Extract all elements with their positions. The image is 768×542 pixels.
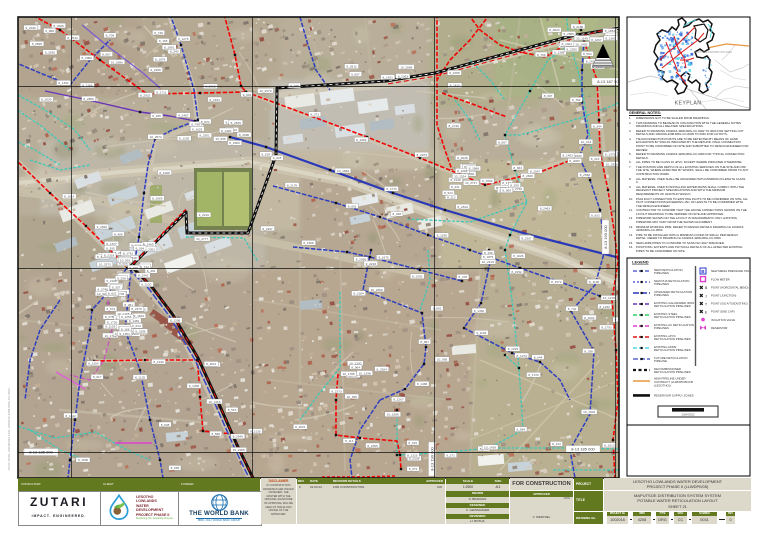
svg-text:8_441: 8_441 bbox=[451, 185, 460, 189]
svg-text:PIPELINES: PIPELINES bbox=[654, 326, 669, 330]
svg-text:RESERVOIR SUPPLY ZONES: RESERVOIR SUPPLY ZONES bbox=[654, 393, 694, 397]
svg-text:10_1145: 10_1145 bbox=[576, 36, 588, 40]
svg-text:8_1952: 8_1952 bbox=[511, 270, 522, 274]
svg-text:8_540: 8_540 bbox=[170, 50, 179, 54]
svg-text:✖: ✖ bbox=[699, 294, 704, 300]
svg-text:8_2626: 8_2626 bbox=[523, 174, 534, 178]
svg-text:8_1593: 8_1593 bbox=[412, 275, 423, 279]
svg-text:8_2396: 8_2396 bbox=[135, 330, 146, 334]
svg-text:(LESOTHO)): (LESOTHO)) bbox=[654, 383, 671, 387]
svg-text:8_948: 8_948 bbox=[392, 212, 401, 216]
svg-text:8_796: 8_796 bbox=[191, 122, 200, 126]
svg-text:8_1572: 8_1572 bbox=[551, 280, 562, 284]
svg-text:10_395: 10_395 bbox=[347, 395, 358, 399]
svg-text:8_2363: 8_2363 bbox=[398, 74, 409, 78]
svg-text:8_298: 8_298 bbox=[584, 349, 593, 353]
svg-text:8_1375: 8_1375 bbox=[605, 153, 616, 157]
svg-text:9_1410: 9_1410 bbox=[450, 84, 461, 88]
svg-text:8_1630: 8_1630 bbox=[78, 458, 89, 462]
svg-text:10_656: 10_656 bbox=[215, 137, 226, 141]
svg-text:8_2739: 8_2739 bbox=[449, 124, 460, 128]
svg-text:ISOLATION VALVE: ISOLATION VALVE bbox=[711, 318, 735, 322]
svg-text:10_2419: 10_2419 bbox=[482, 260, 494, 264]
svg-text:8_1290: 8_1290 bbox=[437, 234, 448, 238]
svg-text:LEGEND: LEGEND bbox=[632, 260, 649, 265]
svg-text:9_2812: 9_2812 bbox=[346, 65, 357, 69]
svg-text:8_2568: 8_2568 bbox=[580, 173, 591, 177]
svg-text:8_702: 8_702 bbox=[568, 307, 577, 311]
svg-text:8_2202: 8_2202 bbox=[584, 316, 595, 320]
svg-text:8_1891: 8_1891 bbox=[164, 46, 175, 50]
svg-text:8_1106: 8_1106 bbox=[589, 280, 599, 284]
svg-text:8_1240: 8_1240 bbox=[153, 360, 164, 364]
svg-text:9_1829: 9_1829 bbox=[97, 225, 108, 229]
svg-text:8_2611: 8_2611 bbox=[206, 362, 216, 366]
svg-text:8_1726: 8_1726 bbox=[107, 321, 118, 325]
svg-text:8_1338: 8_1338 bbox=[170, 319, 181, 323]
svg-text:8_1325: 8_1325 bbox=[407, 454, 418, 458]
svg-text:10_2924: 10_2924 bbox=[454, 175, 466, 179]
svg-text:✖: ✖ bbox=[699, 302, 704, 308]
svg-text:8_1452: 8_1452 bbox=[474, 309, 485, 313]
svg-text:8_1276: 8_1276 bbox=[178, 37, 189, 41]
svg-text:8_2619: 8_2619 bbox=[458, 205, 469, 209]
svg-text:8_1265: 8_1265 bbox=[121, 315, 132, 319]
svg-text:10_2717: 10_2717 bbox=[465, 181, 477, 185]
svg-text:10_2573: 10_2573 bbox=[99, 263, 111, 267]
svg-text:9_2208: 9_2208 bbox=[150, 68, 161, 72]
svg-text:8_1120: 8_1120 bbox=[141, 283, 151, 287]
svg-text:POINT (HORIZONTAL BEND): POINT (HORIZONTAL BEND) bbox=[711, 285, 748, 289]
svg-text:8_567: 8_567 bbox=[498, 141, 507, 145]
svg-text:9_1625: 9_1625 bbox=[192, 127, 203, 131]
svg-text:J: J bbox=[705, 294, 707, 298]
svg-text:RETICULATION PIPELINES: RETICULATION PIPELINES bbox=[654, 337, 691, 341]
svg-text:8_892: 8_892 bbox=[433, 307, 442, 311]
svg-text:8_2823: 8_2823 bbox=[549, 28, 560, 32]
svg-text:8_1711: 8_1711 bbox=[156, 90, 166, 94]
svg-text:8_156: 8_156 bbox=[159, 39, 168, 43]
svg-text:8-13 190 000: 8-13 190 000 bbox=[603, 224, 608, 248]
svg-text:8_672: 8_672 bbox=[409, 467, 418, 471]
svg-text:POINT (ISO A/TS/EXISTING): POINT (ISO A/TS/EXISTING) bbox=[711, 302, 748, 306]
svg-text:9_2216: 9_2216 bbox=[199, 213, 210, 217]
svg-text:8_631: 8_631 bbox=[108, 292, 117, 296]
svg-text:8_2501: 8_2501 bbox=[199, 134, 210, 138]
svg-text:8_915: 8_915 bbox=[408, 441, 417, 445]
svg-text:8_833: 8_833 bbox=[513, 166, 522, 170]
svg-text:9_1829: 9_1829 bbox=[134, 314, 145, 318]
svg-text:8_2463: 8_2463 bbox=[540, 207, 551, 211]
svg-text:8_2250: 8_2250 bbox=[567, 48, 578, 52]
svg-text:8_1302: 8_1302 bbox=[58, 81, 69, 85]
svg-text:8_2194: 8_2194 bbox=[210, 98, 221, 102]
svg-text:8_580: 8_580 bbox=[211, 432, 220, 436]
svg-text:8_564: 8_564 bbox=[583, 52, 592, 56]
svg-text:8_2188: 8_2188 bbox=[573, 25, 584, 29]
svg-text:8_2030: 8_2030 bbox=[41, 98, 52, 102]
svg-text:10_1415: 10_1415 bbox=[208, 400, 220, 404]
svg-text:8_2980: 8_2980 bbox=[82, 56, 93, 60]
svg-text:RETICULATION PIPELINES: RETICULATION PIPELINES bbox=[654, 304, 691, 308]
svg-text:9_264: 9_264 bbox=[135, 246, 144, 250]
svg-text:8_1354: 8_1354 bbox=[88, 362, 99, 366]
svg-text:PLOT DATE: 2024/03/22 FILE: 1: PLOT DATE: 2024/03/22 FILE: 1002016-4208… bbox=[7, 388, 11, 470]
svg-text:8_574: 8_574 bbox=[106, 307, 115, 311]
svg-text:8_1431: 8_1431 bbox=[383, 75, 394, 79]
svg-text:8_113: 8_113 bbox=[447, 195, 456, 199]
svg-text:8_1688: 8_1688 bbox=[469, 167, 480, 171]
svg-text:8_832: 8_832 bbox=[591, 214, 600, 218]
svg-text:10_1785: 10_1785 bbox=[343, 372, 355, 376]
svg-text:8_265: 8_265 bbox=[152, 114, 161, 118]
svg-text:10_1586: 10_1586 bbox=[387, 413, 399, 417]
svg-text:RETICULATION PIPELINES: RETICULATION PIPELINES bbox=[654, 348, 691, 352]
svg-text:8_997: 8_997 bbox=[544, 94, 553, 98]
svg-text:8_1322: 8_1322 bbox=[65, 414, 76, 418]
svg-text:8_938: 8_938 bbox=[161, 423, 170, 427]
svg-text:10_313: 10_313 bbox=[581, 140, 592, 144]
svg-text:POINT (JUNCTION): POINT (JUNCTION) bbox=[711, 294, 736, 298]
svg-text:10_1439: 10_1439 bbox=[484, 446, 496, 450]
svg-text:8_486: 8_486 bbox=[114, 232, 123, 236]
svg-text:9_1308: 9_1308 bbox=[189, 384, 200, 388]
svg-text:8_2257: 8_2257 bbox=[521, 237, 532, 241]
svg-text:NEW MEDIA PRESSURE TANK: NEW MEDIA PRESSURE TANK bbox=[711, 269, 751, 273]
svg-text:9_2430: 9_2430 bbox=[26, 26, 37, 30]
svg-text:9_697: 9_697 bbox=[351, 72, 360, 76]
svg-text:8-13 187 500: 8-13 187 500 bbox=[597, 79, 621, 84]
svg-text:8_2880: 8_2880 bbox=[83, 97, 94, 101]
svg-text:8_667: 8_667 bbox=[102, 52, 111, 56]
svg-text:10_1298: 10_1298 bbox=[359, 371, 371, 375]
svg-text:8_1669: 8_1669 bbox=[152, 197, 163, 201]
svg-text:10_2359: 10_2359 bbox=[371, 288, 383, 292]
svg-text:8_2178: 8_2178 bbox=[287, 183, 298, 187]
svg-text:POINT (END CAP): POINT (END CAP) bbox=[711, 310, 735, 314]
svg-text:10_1604: 10_1604 bbox=[583, 410, 595, 414]
svg-text:10_995: 10_995 bbox=[437, 358, 448, 362]
svg-text:8_478: 8_478 bbox=[458, 275, 467, 279]
svg-text:8_696: 8_696 bbox=[171, 466, 180, 470]
svg-text:8_213: 8_213 bbox=[591, 157, 600, 161]
svg-text:9_1875: 9_1875 bbox=[378, 256, 389, 260]
svg-text:8_584: 8_584 bbox=[516, 428, 525, 432]
svg-text:8-13 190 000: 8-13 190 000 bbox=[430, 446, 435, 470]
svg-text:10_2405: 10_2405 bbox=[233, 448, 245, 452]
svg-text:8_1135: 8_1135 bbox=[135, 375, 145, 379]
svg-text:8_1814: 8_1814 bbox=[64, 195, 75, 199]
svg-text:8_261: 8_261 bbox=[124, 303, 133, 307]
svg-text:10_2572: 10_2572 bbox=[150, 135, 162, 139]
svg-text:8_1088: 8_1088 bbox=[449, 71, 460, 75]
svg-text:8_113: 8_113 bbox=[345, 439, 354, 443]
svg-text:8_2383: 8_2383 bbox=[229, 141, 240, 145]
svg-text:10_591: 10_591 bbox=[120, 259, 131, 263]
svg-text:10_1278: 10_1278 bbox=[603, 296, 615, 300]
svg-text:9_258: 9_258 bbox=[117, 276, 126, 280]
svg-text:8_2392: 8_2392 bbox=[356, 138, 367, 142]
svg-text:9_904: 9_904 bbox=[243, 93, 252, 97]
svg-text:8_870: 8_870 bbox=[201, 120, 210, 124]
svg-text:9_868: 9_868 bbox=[45, 29, 54, 33]
svg-text:8_1979: 8_1979 bbox=[155, 58, 166, 62]
svg-text:2024/03/22: 2024/03/22 bbox=[682, 413, 696, 417]
svg-text:8_2038: 8_2038 bbox=[457, 156, 468, 160]
svg-text:8_2184: 8_2184 bbox=[353, 292, 364, 296]
svg-text:8_1773: 8_1773 bbox=[386, 187, 397, 191]
svg-text:10_2886: 10_2886 bbox=[400, 65, 412, 69]
svg-text:8_1068: 8_1068 bbox=[159, 171, 170, 175]
svg-text:✖: ✖ bbox=[699, 310, 704, 316]
svg-text:8_1613: 8_1613 bbox=[604, 444, 615, 448]
svg-text:PIPELINES: PIPELINES bbox=[654, 282, 669, 286]
svg-text:8_2549: 8_2549 bbox=[233, 435, 244, 439]
svg-text:8_2067: 8_2067 bbox=[530, 169, 541, 173]
svg-text:8_704: 8_704 bbox=[106, 34, 115, 38]
svg-text:9_2135: 9_2135 bbox=[250, 429, 261, 433]
svg-text:✖: ✖ bbox=[699, 285, 704, 291]
svg-text:9_2685: 9_2685 bbox=[564, 32, 575, 36]
svg-text:RESERVOIR: RESERVOIR bbox=[711, 326, 727, 330]
svg-text:8_2487: 8_2487 bbox=[178, 113, 189, 117]
svg-text:8_1232: 8_1232 bbox=[600, 305, 611, 309]
svg-text:8_1366: 8_1366 bbox=[82, 84, 93, 88]
svg-text:8_2060: 8_2060 bbox=[569, 159, 580, 163]
svg-text:8_1363: 8_1363 bbox=[605, 36, 616, 40]
svg-text:9_371: 9_371 bbox=[446, 454, 455, 458]
svg-text:8_1875: 8_1875 bbox=[483, 255, 494, 259]
svg-text:PIPELINE: PIPELINE bbox=[654, 359, 667, 363]
svg-text:8_1282: 8_1282 bbox=[457, 169, 468, 173]
svg-text:RETICULATION PIPELINES: RETICULATION PIPELINES bbox=[654, 370, 691, 374]
svg-text:8_2535: 8_2535 bbox=[231, 121, 242, 125]
svg-text:8_1390: 8_1390 bbox=[221, 129, 232, 133]
svg-text:8_1997: 8_1997 bbox=[262, 227, 273, 231]
svg-text:8_166: 8_166 bbox=[121, 327, 130, 331]
svg-text:8_1403: 8_1403 bbox=[563, 154, 574, 158]
svg-text:9_2218: 9_2218 bbox=[366, 262, 377, 266]
svg-text:8_1267: 8_1267 bbox=[591, 38, 602, 42]
svg-text:8_2895: 8_2895 bbox=[32, 42, 43, 46]
svg-text:9_1354: 9_1354 bbox=[119, 332, 130, 336]
svg-text:8_2624: 8_2624 bbox=[377, 367, 388, 371]
svg-text:8_2534: 8_2534 bbox=[67, 36, 78, 40]
svg-text:9_215: 9_215 bbox=[273, 156, 282, 160]
svg-text:8_1723: 8_1723 bbox=[528, 373, 539, 377]
svg-text:8_964: 8_964 bbox=[351, 365, 360, 369]
svg-text:9_357: 9_357 bbox=[112, 285, 121, 289]
svg-text:8_1481: 8_1481 bbox=[129, 319, 140, 323]
svg-text:8_344: 8_344 bbox=[593, 124, 602, 128]
svg-text:8_749: 8_749 bbox=[154, 31, 163, 35]
svg-text:8_1126: 8_1126 bbox=[105, 325, 115, 329]
svg-text:10_2579: 10_2579 bbox=[259, 89, 271, 93]
svg-text:8-13 185 000: 8-13 185 000 bbox=[571, 447, 595, 452]
svg-text:MAPUTSOE DISTRIBUTION AREA: MAPUTSOE DISTRIBUTION AREA bbox=[694, 51, 732, 54]
svg-text:8_2001: 8_2001 bbox=[295, 425, 306, 429]
svg-text:8_2932: 8_2932 bbox=[140, 93, 151, 97]
svg-text:8_2596: 8_2596 bbox=[239, 133, 250, 137]
svg-text:8_134: 8_134 bbox=[552, 442, 561, 446]
svg-text:RETICULATION PIPELINES: RETICULATION PIPELINES bbox=[654, 315, 691, 319]
svg-text:8_1761: 8_1761 bbox=[123, 252, 134, 256]
svg-text:PIPELINES: PIPELINES bbox=[654, 293, 669, 297]
svg-text:8_969: 8_969 bbox=[502, 189, 511, 193]
svg-text:8_2476: 8_2476 bbox=[131, 307, 142, 311]
svg-text:8_2973: 8_2973 bbox=[417, 153, 428, 157]
svg-text:8_691: 8_691 bbox=[348, 204, 357, 208]
svg-text:T: T bbox=[705, 302, 707, 306]
svg-text:9_1398: 9_1398 bbox=[554, 51, 565, 55]
svg-text:8_491: 8_491 bbox=[147, 269, 156, 273]
svg-text:8_373: 8_373 bbox=[310, 113, 319, 117]
svg-text:KEYPLAN: KEYPLAN bbox=[675, 101, 702, 107]
svg-text:9_920: 9_920 bbox=[129, 266, 138, 270]
svg-text:8_1793: 8_1793 bbox=[601, 326, 612, 330]
svg-text:8_1301: 8_1301 bbox=[562, 42, 573, 46]
svg-text:10_1683: 10_1683 bbox=[337, 169, 349, 173]
svg-text:8_2319: 8_2319 bbox=[104, 254, 115, 258]
svg-text:8_1026: 8_1026 bbox=[513, 254, 524, 258]
svg-text:8_2891: 8_2891 bbox=[45, 51, 56, 55]
svg-text:8_697: 8_697 bbox=[420, 340, 429, 344]
svg-text:8_1654: 8_1654 bbox=[605, 29, 616, 33]
svg-text:FLOW METER: FLOW METER bbox=[711, 277, 730, 281]
svg-text:8_1229: 8_1229 bbox=[508, 347, 519, 351]
svg-text:8_515: 8_515 bbox=[228, 408, 237, 412]
svg-text:10_1495: 10_1495 bbox=[575, 43, 587, 47]
svg-text:8_782: 8_782 bbox=[572, 98, 581, 102]
svg-text:8_1267: 8_1267 bbox=[393, 398, 404, 402]
svg-text:8_1526: 8_1526 bbox=[303, 241, 314, 245]
svg-text:PIPELINES: PIPELINES bbox=[654, 271, 669, 275]
svg-text:9_1235: 9_1235 bbox=[179, 137, 190, 141]
svg-text:10_2928: 10_2928 bbox=[606, 162, 618, 166]
svg-text:8_769: 8_769 bbox=[537, 53, 546, 57]
svg-text:8_617: 8_617 bbox=[93, 375, 102, 379]
svg-text:8_1273: 8_1273 bbox=[517, 354, 528, 358]
svg-text:9_1539: 9_1539 bbox=[482, 179, 493, 183]
svg-text:8_488: 8_488 bbox=[290, 84, 299, 88]
svg-text:8_2355: 8_2355 bbox=[367, 444, 378, 448]
svg-text:10_2777: 10_2777 bbox=[196, 237, 208, 241]
svg-text:8_1468: 8_1468 bbox=[417, 382, 428, 386]
svg-text:8_644: 8_644 bbox=[534, 355, 543, 359]
svg-text:8_2373: 8_2373 bbox=[331, 389, 342, 393]
svg-text:8_2026: 8_2026 bbox=[53, 24, 64, 28]
svg-text:8_1942: 8_1942 bbox=[138, 274, 149, 278]
svg-text:8_539: 8_539 bbox=[261, 153, 270, 157]
svg-text:8_359: 8_359 bbox=[510, 184, 519, 188]
svg-text:8_395: 8_395 bbox=[106, 246, 115, 250]
svg-text:8_524: 8_524 bbox=[444, 191, 453, 195]
svg-text:8_644: 8_644 bbox=[132, 324, 141, 328]
svg-text:10_2686: 10_2686 bbox=[111, 60, 123, 64]
svg-text:9_1194: 9_1194 bbox=[476, 331, 486, 335]
